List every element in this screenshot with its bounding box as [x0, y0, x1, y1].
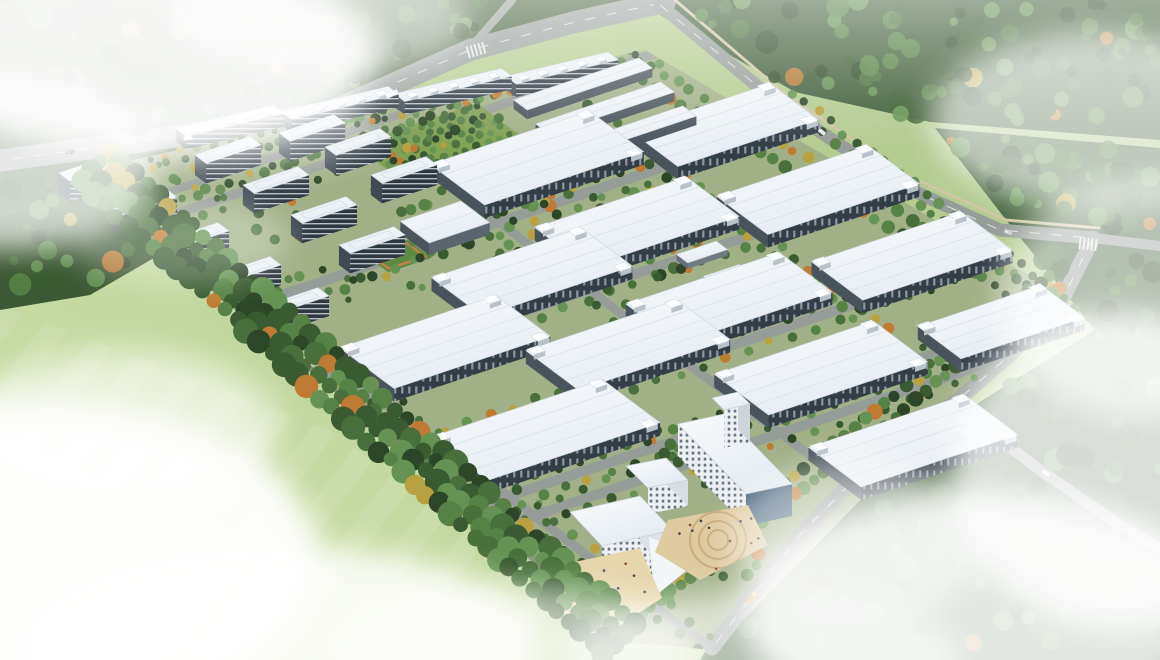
tree	[767, 153, 779, 165]
tree	[356, 273, 366, 283]
tree	[561, 481, 570, 490]
tree	[891, 204, 904, 217]
tree	[509, 217, 517, 225]
tree	[512, 485, 522, 495]
tree	[319, 266, 327, 274]
tree	[396, 206, 407, 217]
tree	[644, 181, 652, 189]
pedestrian	[617, 587, 620, 590]
tree	[927, 210, 935, 218]
tree	[881, 220, 894, 233]
tree	[859, 412, 872, 425]
tree	[349, 276, 357, 284]
tree	[744, 346, 753, 355]
tree	[718, 571, 728, 581]
tree	[836, 421, 843, 428]
tree	[869, 214, 880, 225]
tree	[668, 424, 679, 435]
tree	[574, 204, 583, 213]
tree	[382, 272, 391, 281]
tree	[542, 518, 551, 527]
tree	[194, 282, 210, 298]
tree	[9, 273, 31, 295]
tree	[653, 272, 662, 281]
tree	[35, 269, 58, 292]
tree	[58, 271, 68, 281]
tree	[367, 271, 377, 281]
tree	[561, 509, 570, 518]
tree	[888, 391, 899, 402]
tree	[699, 363, 707, 371]
tree	[849, 314, 858, 323]
tree	[579, 485, 588, 494]
tree	[621, 186, 630, 195]
tree	[218, 302, 233, 317]
tree	[60, 255, 73, 268]
tree	[556, 494, 564, 502]
tree	[678, 371, 686, 379]
distance-haze	[0, 0, 1160, 150]
pedestrian	[700, 520, 703, 523]
tree	[740, 242, 751, 253]
tree	[628, 280, 637, 289]
tree	[608, 468, 616, 476]
tree	[540, 200, 549, 209]
tree	[538, 489, 549, 500]
tree	[676, 580, 687, 591]
tree	[496, 231, 505, 240]
tree	[923, 190, 932, 199]
tree	[285, 275, 293, 283]
tree	[602, 474, 611, 483]
tree	[582, 476, 591, 485]
tree	[788, 434, 797, 443]
tree	[517, 500, 526, 509]
tree	[511, 570, 528, 587]
tree	[558, 302, 568, 312]
tree	[951, 380, 959, 388]
tree	[418, 199, 430, 211]
tree	[294, 271, 304, 281]
tree	[406, 281, 415, 290]
tree	[803, 151, 815, 163]
tree	[598, 193, 606, 201]
tree	[552, 209, 562, 219]
tree	[788, 332, 798, 342]
tree	[530, 216, 540, 226]
tree	[906, 214, 920, 228]
tree	[9, 256, 18, 265]
tree	[415, 253, 424, 262]
fog-cloud	[70, 195, 290, 285]
tree	[836, 301, 847, 312]
pedestrian	[715, 568, 718, 571]
tree	[391, 264, 401, 274]
pedestrian	[691, 529, 694, 532]
tree	[658, 448, 670, 460]
tree	[224, 179, 233, 188]
tree	[991, 281, 999, 289]
tree	[340, 284, 351, 295]
tree	[537, 313, 547, 323]
tree	[767, 443, 774, 450]
aerial-rendering-canvas	[0, 0, 1160, 660]
pedestrian	[633, 574, 636, 577]
tree	[345, 297, 351, 303]
tree	[390, 157, 398, 165]
tree	[550, 517, 559, 526]
tree	[908, 391, 924, 407]
tree	[835, 314, 845, 324]
tree	[418, 284, 425, 291]
pedestrian	[624, 562, 627, 565]
tree	[405, 204, 416, 215]
tree	[215, 185, 225, 195]
tree	[811, 325, 821, 335]
pedestrian	[643, 591, 646, 594]
pedestrian	[708, 526, 711, 529]
pedestrian	[603, 569, 606, 572]
tree	[503, 239, 514, 250]
tree	[589, 193, 598, 202]
tree	[314, 176, 322, 184]
aerial-rendering	[0, 0, 1160, 660]
pedestrian	[678, 532, 681, 535]
tree	[592, 301, 601, 310]
tree	[933, 198, 944, 209]
tree	[534, 502, 542, 510]
tree	[567, 529, 578, 540]
tree	[173, 176, 182, 185]
tree	[916, 200, 927, 211]
tree	[453, 517, 468, 532]
tree	[810, 427, 819, 436]
tree	[930, 375, 943, 388]
tree	[765, 337, 773, 345]
tree	[590, 543, 600, 553]
tree	[192, 184, 199, 191]
tree	[971, 374, 978, 381]
pedestrian	[689, 524, 692, 527]
scene	[0, 0, 1160, 660]
